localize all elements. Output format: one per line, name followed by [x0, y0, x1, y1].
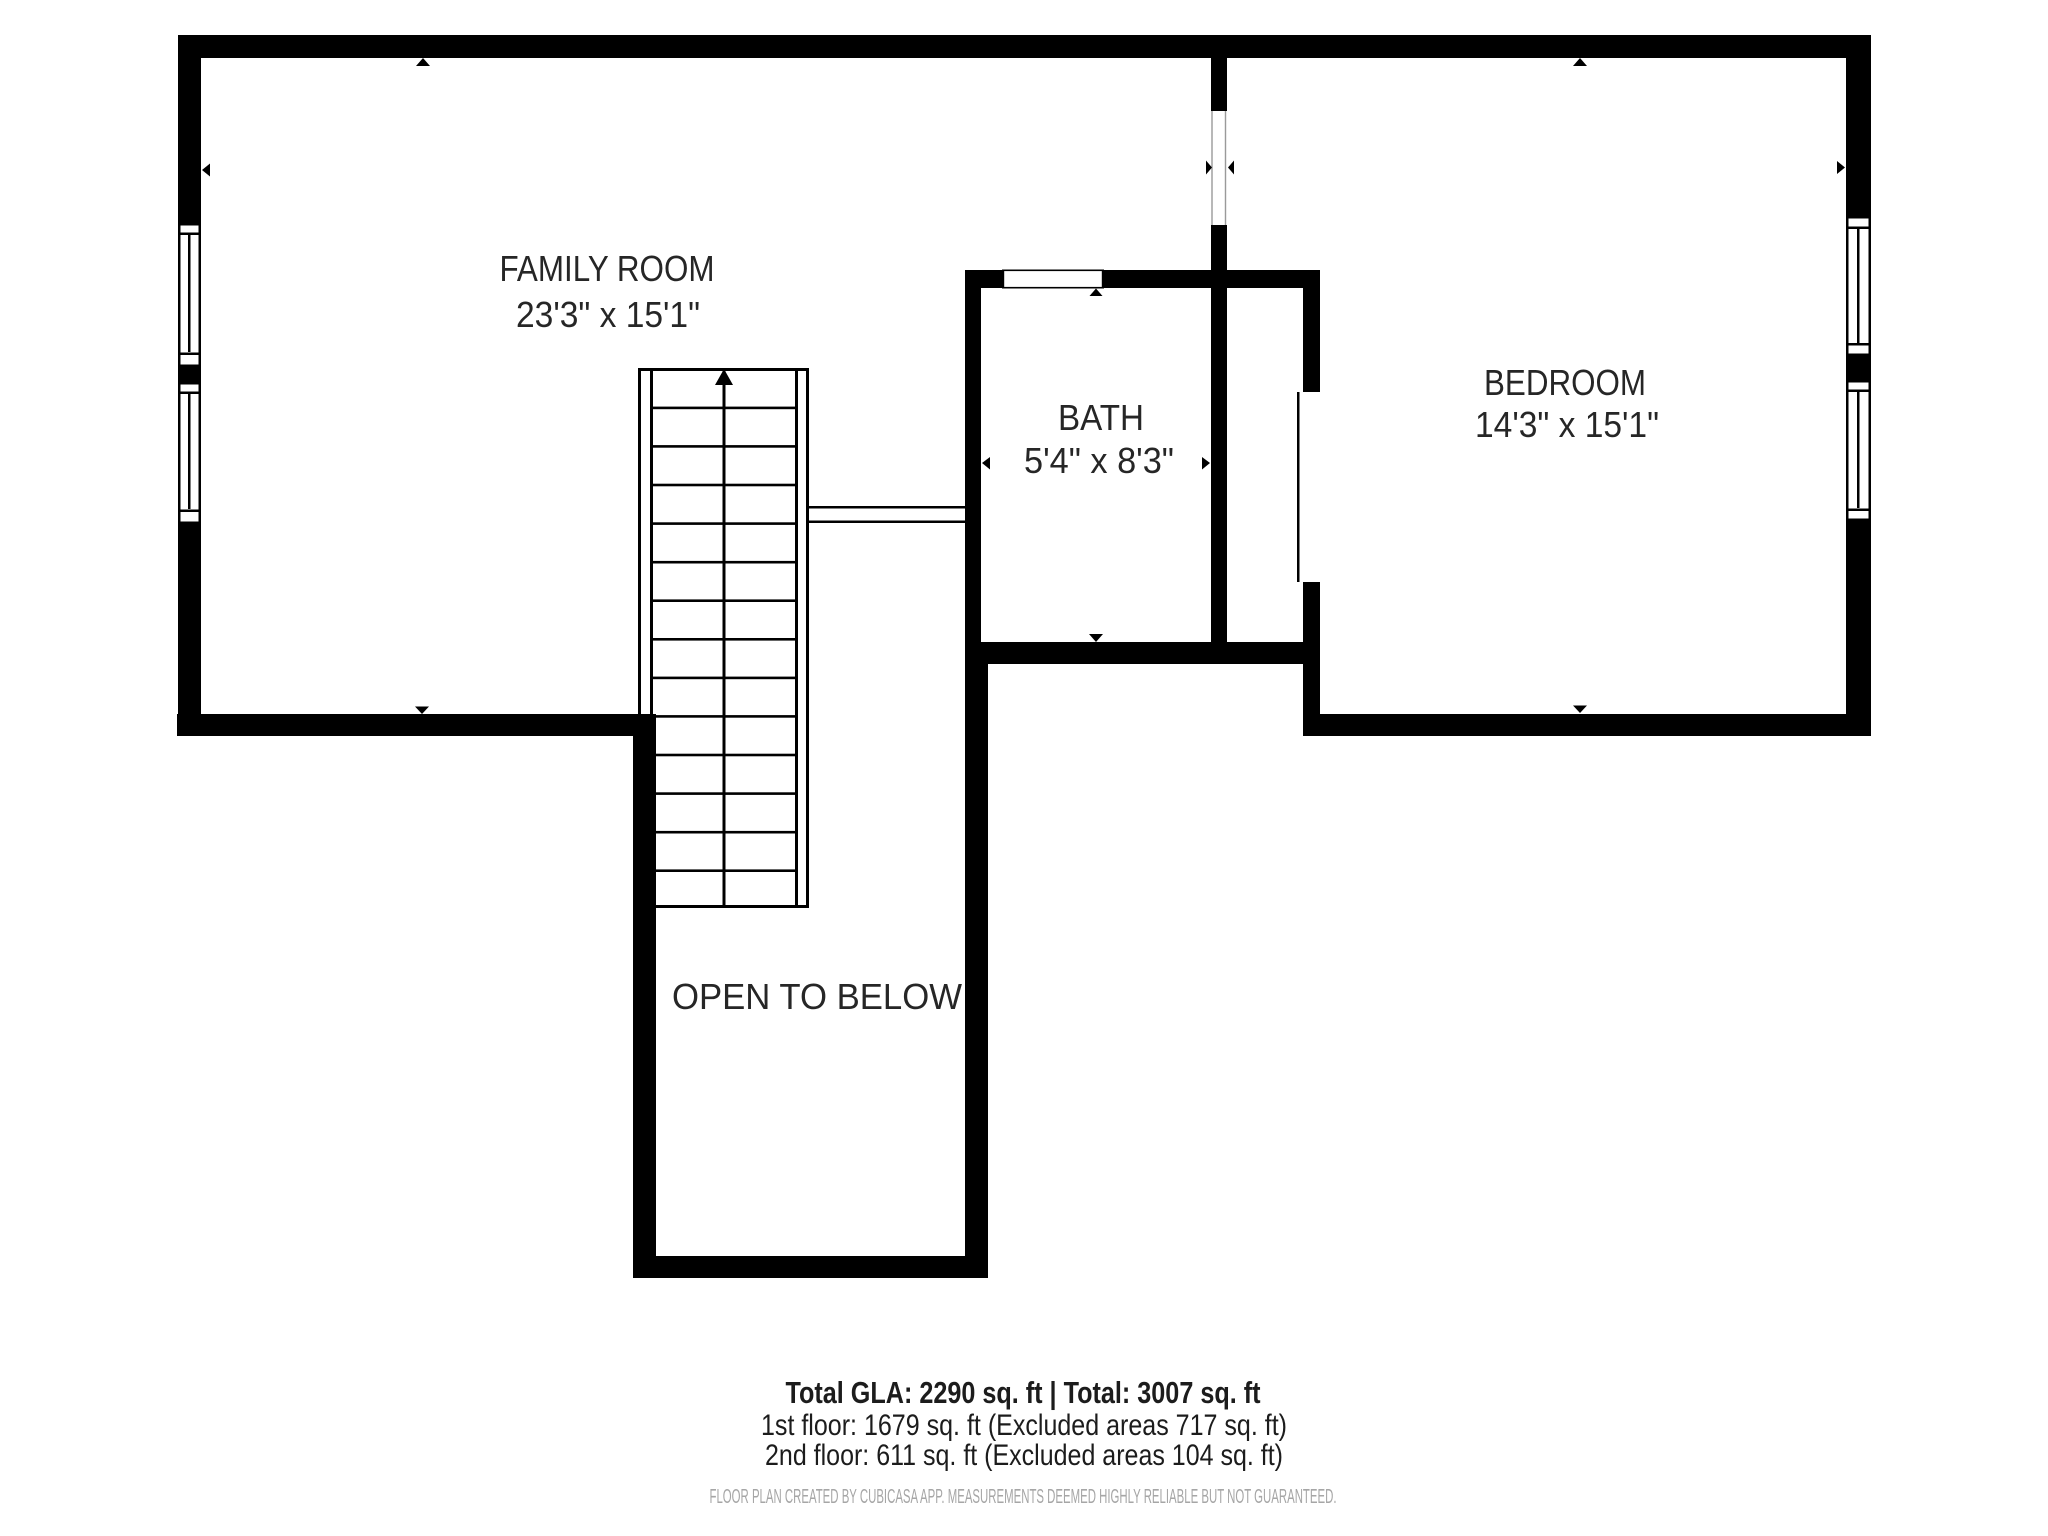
- svg-text:2nd floor: 611 sq. ft (Exclude: 2nd floor: 611 sq. ft (Excluded areas 10…: [765, 1439, 1283, 1472]
- svg-text:5'4" x 8'3": 5'4" x 8'3": [1024, 440, 1174, 481]
- svg-text:23'3" x 15'1": 23'3" x 15'1": [516, 294, 700, 335]
- svg-text:Total GLA: 2290 sq. ft | Total: Total GLA: 2290 sq. ft | Total: 3007 sq.…: [786, 1375, 1261, 1410]
- svg-text:BEDROOM: BEDROOM: [1484, 362, 1646, 403]
- svg-text:BATH: BATH: [1058, 397, 1144, 438]
- svg-text:OPEN TO BELOW: OPEN TO BELOW: [672, 976, 962, 1017]
- svg-text:FLOOR PLAN CREATED BY CUBICASA: FLOOR PLAN CREATED BY CUBICASA APP. MEAS…: [710, 1486, 1337, 1508]
- svg-text:14'3" x 15'1": 14'3" x 15'1": [1475, 404, 1659, 445]
- svg-text:1st floor: 1679 sq. ft (Exclud: 1st floor: 1679 sq. ft (Excluded areas 7…: [761, 1409, 1287, 1442]
- svg-text:FAMILY ROOM: FAMILY ROOM: [500, 248, 715, 289]
